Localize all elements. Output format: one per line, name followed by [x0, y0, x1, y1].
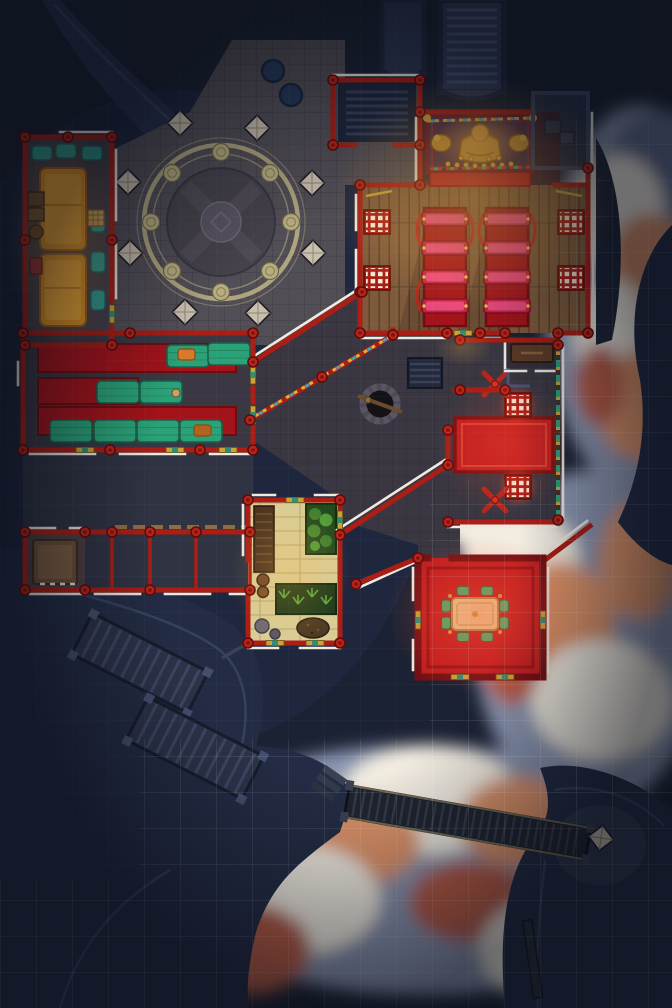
battle-map: [0, 0, 672, 1008]
map-canvas: [0, 0, 672, 1008]
vignette: [0, 0, 672, 1008]
